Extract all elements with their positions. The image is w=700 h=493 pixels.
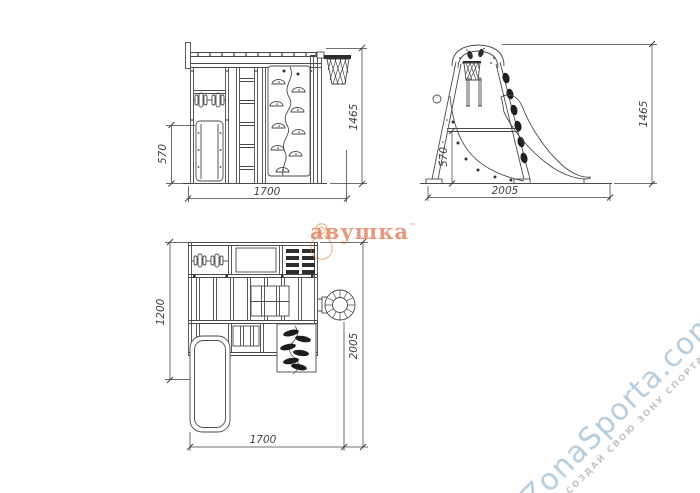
blueprint-drawing: 570 1700 1465 <box>0 0 700 493</box>
climbing-holds-side <box>501 72 528 164</box>
climbing-holds-top <box>277 324 316 374</box>
front-dim-height: 1465 <box>348 103 360 130</box>
side-dim-depth: 2005 <box>492 185 519 197</box>
side-dim-lower-height: 570 <box>438 147 450 167</box>
basketball-ring-top <box>318 290 355 320</box>
top-dim-frame-depth: 1200 <box>155 298 167 325</box>
basketball-hoop-front <box>317 52 351 84</box>
front-dim-slide-height: 570 <box>157 144 169 164</box>
hoop-rim-front <box>324 55 351 59</box>
monkey-bar-rungs-top <box>286 249 315 274</box>
top-dim-width: 1700 <box>250 434 277 446</box>
side-dim-height: 1465 <box>638 100 650 127</box>
top-dim-depth: 2005 <box>348 332 360 359</box>
top-view: 1200 2005 1700 <box>155 239 368 451</box>
front-dim-width: 1700 <box>254 186 281 198</box>
side-dimensions: 570 2005 1465 <box>425 41 657 201</box>
gym-rings-front <box>194 93 225 107</box>
slide-front <box>196 121 223 181</box>
climbing-wall-front <box>268 66 310 176</box>
basketball-net-side <box>463 62 481 80</box>
front-view: 570 1700 1465 <box>157 43 367 203</box>
gym-rings-top <box>192 254 228 267</box>
slide-top <box>190 336 230 432</box>
footprint-cutouts <box>466 48 485 60</box>
trapeze-bars-side <box>466 78 482 106</box>
blueprint-stage: 570 1700 1465 <box>0 0 700 493</box>
side-view: 570 2005 1465 <box>420 41 657 201</box>
gym-ring-side <box>433 95 441 103</box>
